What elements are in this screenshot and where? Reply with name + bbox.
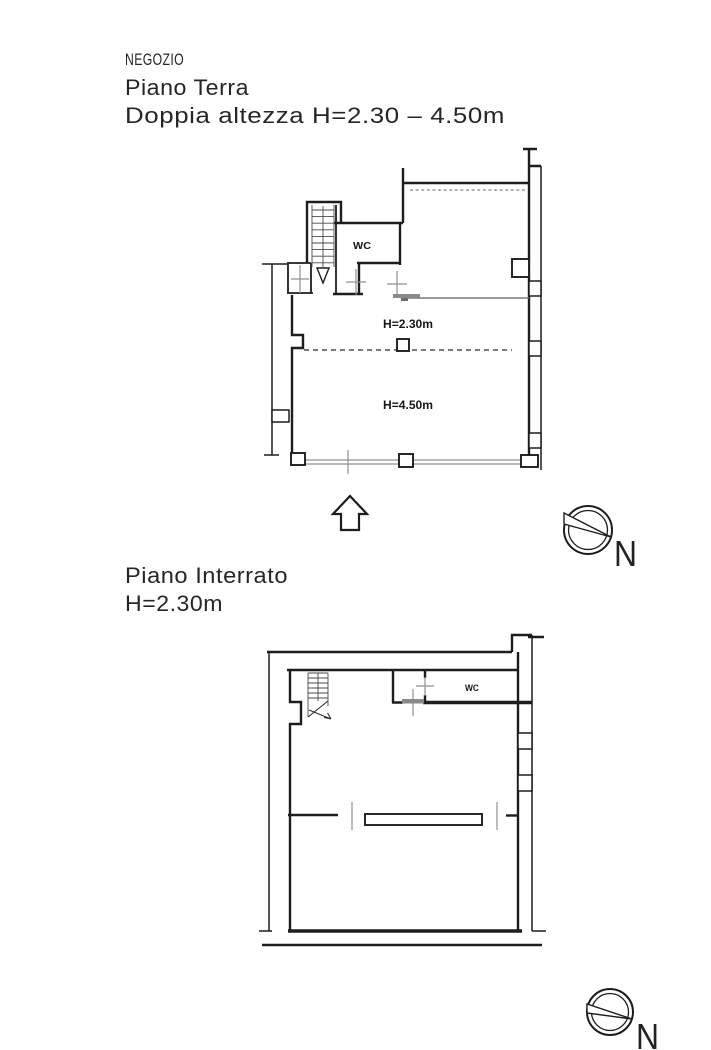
height-note: Doppia altezza H=2.30 – 4.50m [125, 103, 505, 128]
left-wall-tie [272, 410, 289, 422]
basement-stair-arrow [309, 710, 331, 719]
sheet-title: NEGOZIO [125, 50, 184, 69]
storefront-pillar-left [291, 453, 305, 465]
floor-name: Piano Terra [125, 75, 249, 100]
storefront-pillar-right [521, 455, 538, 467]
stair-treads [312, 205, 334, 267]
north-letter-bottom: N [636, 1016, 659, 1050]
basement-top-wall [267, 635, 544, 652]
basement-left-wall [290, 670, 301, 931]
right-wall-tie-2 [529, 341, 541, 356]
north-needle-icon-bottom [587, 1004, 632, 1019]
entrance-arrow-icon [333, 496, 367, 530]
wc-label-ground: WC [353, 241, 371, 252]
basement-title-block: Piano Interrato H=2.30m [125, 563, 288, 616]
left-neighbor-line [262, 264, 287, 455]
basement-floor-name: Piano Interrato [125, 563, 288, 588]
top-right-room-walls [403, 148, 541, 223]
door-marker-backroom [387, 271, 407, 297]
low-zone-label: H=2.30m [383, 317, 433, 331]
basement-right-tie-1 [518, 733, 532, 749]
wc-label-basement: WC [465, 683, 479, 694]
basement-stair-cut [308, 701, 328, 717]
wc-room-walls [357, 223, 401, 294]
right-wall-tie-3 [529, 433, 541, 448]
basement-plan: WC [259, 635, 546, 945]
title-block: NEGOZIO Piano Terra Doppia altezza H=2.3… [125, 50, 505, 128]
right-wall-tie-1 [529, 281, 541, 296]
left-wall [292, 295, 303, 453]
basement-threshold [402, 699, 424, 704]
stair-down-arrow [317, 268, 329, 283]
storefront-pillar-center [399, 454, 413, 467]
north-indicator-top: N [564, 506, 637, 574]
north-needle-icon [564, 513, 611, 537]
basement-height-note: H=2.30m [125, 591, 223, 616]
center-pillar [397, 339, 409, 351]
basement-middle-wall-island [365, 814, 482, 825]
door-marker-entry [291, 265, 309, 293]
basement-right-tie-2 [518, 775, 532, 791]
ground-floor-plan: WC H=2.30m H=4.50m [262, 148, 541, 474]
north-letter-top: N [614, 533, 637, 574]
plan-drawing: NEGOZIO Piano Terra Doppia altezza H=2.3… [0, 0, 711, 1050]
basement-wc-door-marker [416, 677, 434, 696]
staircase-basement [308, 673, 331, 719]
door-marker-lobby [346, 269, 366, 295]
floor-plan-sheet: NEGOZIO Piano Terra Doppia altezza H=2.3… [0, 0, 711, 1050]
high-zone-label: H=4.50m [383, 398, 433, 412]
staircase-ground [312, 205, 334, 283]
north-indicator-bottom: N [587, 989, 659, 1050]
door-threshold [393, 294, 420, 298]
right-pilaster [512, 259, 529, 277]
